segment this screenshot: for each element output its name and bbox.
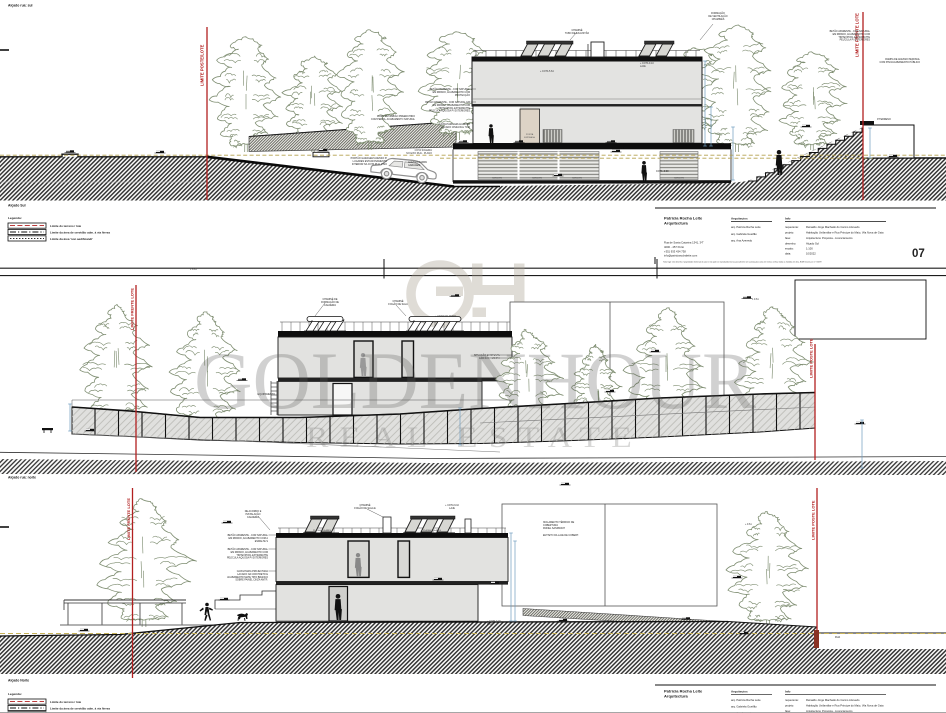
svg-text:arq. Ana Azevedo: arq. Ana Azevedo bbox=[731, 239, 753, 243]
svg-text:data:: data: bbox=[785, 252, 791, 256]
svg-text:LIMITE POSTE LOTE: LIMITE POSTE LOTE bbox=[811, 500, 816, 540]
svg-text:Alçado rua: sul: Alçado rua: sul bbox=[8, 4, 33, 8]
svg-text:GARAGEM: GARAGEM bbox=[492, 177, 503, 180]
svg-text:Alçado Sul: Alçado Sul bbox=[806, 242, 819, 246]
svg-text:FOGÃO DE SALA: FOGÃO DE SALA bbox=[388, 303, 408, 306]
svg-text:Arquitectura: Arquitectura bbox=[664, 694, 689, 699]
svg-text:P.TERRENO: P.TERRENO bbox=[877, 118, 891, 121]
svg-text:Reinaldo Jorge Machado do Carm: Reinaldo Jorge Machado do Carmo Azevedo bbox=[806, 698, 860, 702]
svg-text:GARAGEM: GARAGEM bbox=[572, 177, 583, 180]
svg-text:Habitação Unifamiliar e Rua Pr: Habitação Unifamiliar e Rua Príncipe do … bbox=[806, 231, 884, 235]
svg-text:COM PEDRA, ACABAMENTO NATURAL: COM PEDRA, ACABAMENTO NATURAL bbox=[371, 118, 416, 121]
svg-text:+ 8.61: + 8.61 bbox=[190, 268, 197, 271]
svg-text:Limite da área de servidão adm: Limite da área de servidão adm. à via fé… bbox=[50, 230, 110, 234]
svg-text:INTERIOR NA COTA RUA -PISO: INTERIOR NA COTA RUA -PISO bbox=[352, 163, 387, 166]
svg-text:PISO: PISO bbox=[487, 623, 493, 626]
svg-text:PELÍCULA P/ EXTERIORES: PELÍCULA P/ EXTERIORES bbox=[840, 39, 871, 42]
svg-text:Habitação Unifamiliar e Rua Pr: Habitação Unifamiliar e Rua Príncipe do … bbox=[806, 703, 884, 707]
svg-text:Arquitectura: Arquitectura bbox=[664, 221, 689, 226]
svg-text:PAINEL SANDWICH: PAINEL SANDWICH bbox=[543, 527, 565, 530]
svg-text:arq. Patrícia Rocha Leite: arq. Patrícia Rocha Leite bbox=[731, 225, 761, 229]
svg-text:Info: Info bbox=[785, 217, 791, 221]
svg-text:Limite do terreno / lote: Limite do terreno / lote bbox=[50, 700, 82, 704]
svg-text:PORTA: PORTA bbox=[526, 133, 534, 136]
svg-text:+ COTA 0.00: + COTA 0.00 bbox=[620, 147, 634, 150]
svg-text:FOGÃO DE SALA E: FOGÃO DE SALA E bbox=[354, 507, 376, 510]
svg-text:Arquitectura: Proposta - Lice: Arquitectura: Proposta - Licenciamento bbox=[806, 236, 853, 240]
svg-text:requerente:: requerente: bbox=[785, 698, 799, 702]
svg-text:projeto:: projeto: bbox=[785, 231, 794, 235]
svg-text:COM PISO/ACABAMENTO PÚBLICO: COM PISO/ACABAMENTO PÚBLICO bbox=[880, 61, 921, 64]
svg-text:fase:: fase: bbox=[785, 236, 791, 240]
svg-text:GOLDENHOUR: GOLDENHOUR bbox=[194, 335, 756, 426]
svg-text:CALDEIRA: CALDEIRA bbox=[247, 516, 259, 519]
svg-text:escala:: escala: bbox=[785, 247, 794, 251]
svg-text:GARAGEM: GARAGEM bbox=[532, 177, 543, 180]
svg-text:LIMITE FRENTE LOTE: LIMITE FRENTE LOTE bbox=[130, 288, 135, 330]
svg-text:LIMITE POSTE/LOTE: LIMITE POSTE/LOTE bbox=[200, 44, 205, 86]
svg-text:Arquitectos: Arquitectos bbox=[731, 217, 748, 221]
svg-text:1:100: 1:100 bbox=[806, 247, 813, 251]
svg-text:PROTECÇÃO: PROTECÇÃO bbox=[455, 94, 470, 97]
svg-text:Limite da área 'non aedificand: Limite da área 'non aedificandi' bbox=[50, 237, 93, 241]
svg-text:4000 - 457 Porto: 4000 - 457 Porto bbox=[664, 245, 685, 249]
svg-text:PLACAS SOLARES: PLACAS SOLARES bbox=[313, 529, 332, 532]
svg-text:PLACAS SOLARES: PLACAS SOLARES bbox=[423, 529, 442, 532]
svg-text:Alçado rua: norte: Alçado rua: norte bbox=[8, 475, 36, 479]
svg-text:RUA: RUA bbox=[835, 636, 840, 639]
svg-text:CHAMINÉS: CHAMINÉS bbox=[712, 18, 725, 21]
svg-text:projeto:: projeto: bbox=[785, 703, 794, 707]
svg-text:arq. Gabriela Gueifão: arq. Gabriela Gueifão bbox=[731, 232, 757, 236]
svg-text:+ 9.61: + 9.61 bbox=[745, 523, 752, 526]
svg-text:Legenda:: Legenda: bbox=[8, 692, 22, 696]
svg-text:Limite da área de servidão adm: Limite da área de servidão adm. à via fé… bbox=[50, 706, 110, 710]
svg-text:Texto legal: este desenho é pr: Texto legal: este desenho é propriedade … bbox=[663, 260, 822, 263]
svg-text:ENTRADA: ENTRADA bbox=[524, 136, 535, 139]
svg-text:GARAGEM: GARAGEM bbox=[674, 177, 685, 180]
svg-text:REAL ESTATE: REAL ESTATE bbox=[306, 421, 643, 454]
svg-text:Legenda:: Legenda: bbox=[8, 216, 22, 220]
svg-text:Arquitectos: Arquitectos bbox=[731, 689, 748, 693]
svg-text:Limite do terreno / lote: Limite do terreno / lote bbox=[50, 224, 82, 228]
svg-text:+ COTA 5.64: + COTA 5.64 bbox=[540, 70, 554, 73]
svg-text:LIMITE FRENTE LOTE: LIMITE FRENTE LOTE bbox=[126, 498, 131, 540]
svg-text:ESMALTE S: ESMALTE S bbox=[255, 540, 269, 543]
svg-text:PELÍCULA AQUOSA P/ EXTERIORES: PELÍCULA AQUOSA P/ EXTERIORES bbox=[227, 557, 268, 560]
svg-text:Info: Info bbox=[785, 689, 791, 693]
svg-text:CALDEIRA: CALDEIRA bbox=[324, 304, 336, 307]
svg-text:COTA -3.00: COTA -3.00 bbox=[656, 170, 669, 173]
svg-text:LIMITE POSTE LOTE: LIMITE POSTE LOTE bbox=[809, 338, 814, 378]
svg-text:Reinaldo Jorge Machado do Carm: Reinaldo Jorge Machado do Carmo Azevedo bbox=[806, 225, 860, 229]
svg-text:TUBO DE EXAUSTÃO: TUBO DE EXAUSTÃO bbox=[565, 32, 589, 35]
svg-text:+351 933 434 738: +351 933 434 738 bbox=[664, 249, 686, 253]
svg-text:PELÍCULA AQUOSA P/ EXTERIORES: PELÍCULA AQUOSA P/ EXTERIORES bbox=[429, 110, 470, 113]
svg-text:arq. Patrícia Rocha Leite: arq. Patrícia Rocha Leite bbox=[731, 698, 761, 702]
svg-text:requerente:: requerente: bbox=[785, 225, 799, 229]
svg-text:GARAGEM: GARAGEM bbox=[408, 164, 420, 167]
svg-text:arq. Gabriela Gueifão: arq. Gabriela Gueifão bbox=[731, 705, 757, 709]
svg-text:NO EIXO RUA - PLANO: NO EIXO RUA - PLANO bbox=[406, 152, 432, 155]
svg-text:EM TETO DA LAJE DE COBERT.: EM TETO DA LAJE DE COBERT. bbox=[543, 534, 579, 537]
svg-text:Alçado Sul: Alçado Sul bbox=[8, 204, 26, 208]
svg-text:Rua de Santa Catarina 1341, 3º: Rua de Santa Catarina 1341, 3ºT bbox=[664, 241, 704, 245]
svg-text:LAJE: LAJE bbox=[449, 507, 455, 510]
svg-text:Alçado Norte: Alçado Norte bbox=[8, 679, 29, 683]
svg-text:10/2022: 10/2022 bbox=[806, 252, 816, 256]
svg-text:+ 9.61: + 9.61 bbox=[752, 298, 759, 301]
svg-text:info@patriciarochaleite.com: info@patriciarochaleite.com bbox=[664, 254, 698, 258]
svg-text:LACADO CINZA RAL 7016: LACADO CINZA RAL 7016 bbox=[441, 126, 470, 129]
svg-text:desenho:: desenho: bbox=[785, 242, 796, 246]
svg-text:LAJE: LAJE bbox=[640, 65, 646, 68]
svg-text:+ LINHA DO MURO: + LINHA DO MURO bbox=[435, 315, 456, 318]
svg-text:SOBRE PAINEL CINZA ANTR.: SOBRE PAINEL CINZA ANTR. bbox=[235, 579, 268, 582]
svg-text:07: 07 bbox=[912, 248, 925, 260]
